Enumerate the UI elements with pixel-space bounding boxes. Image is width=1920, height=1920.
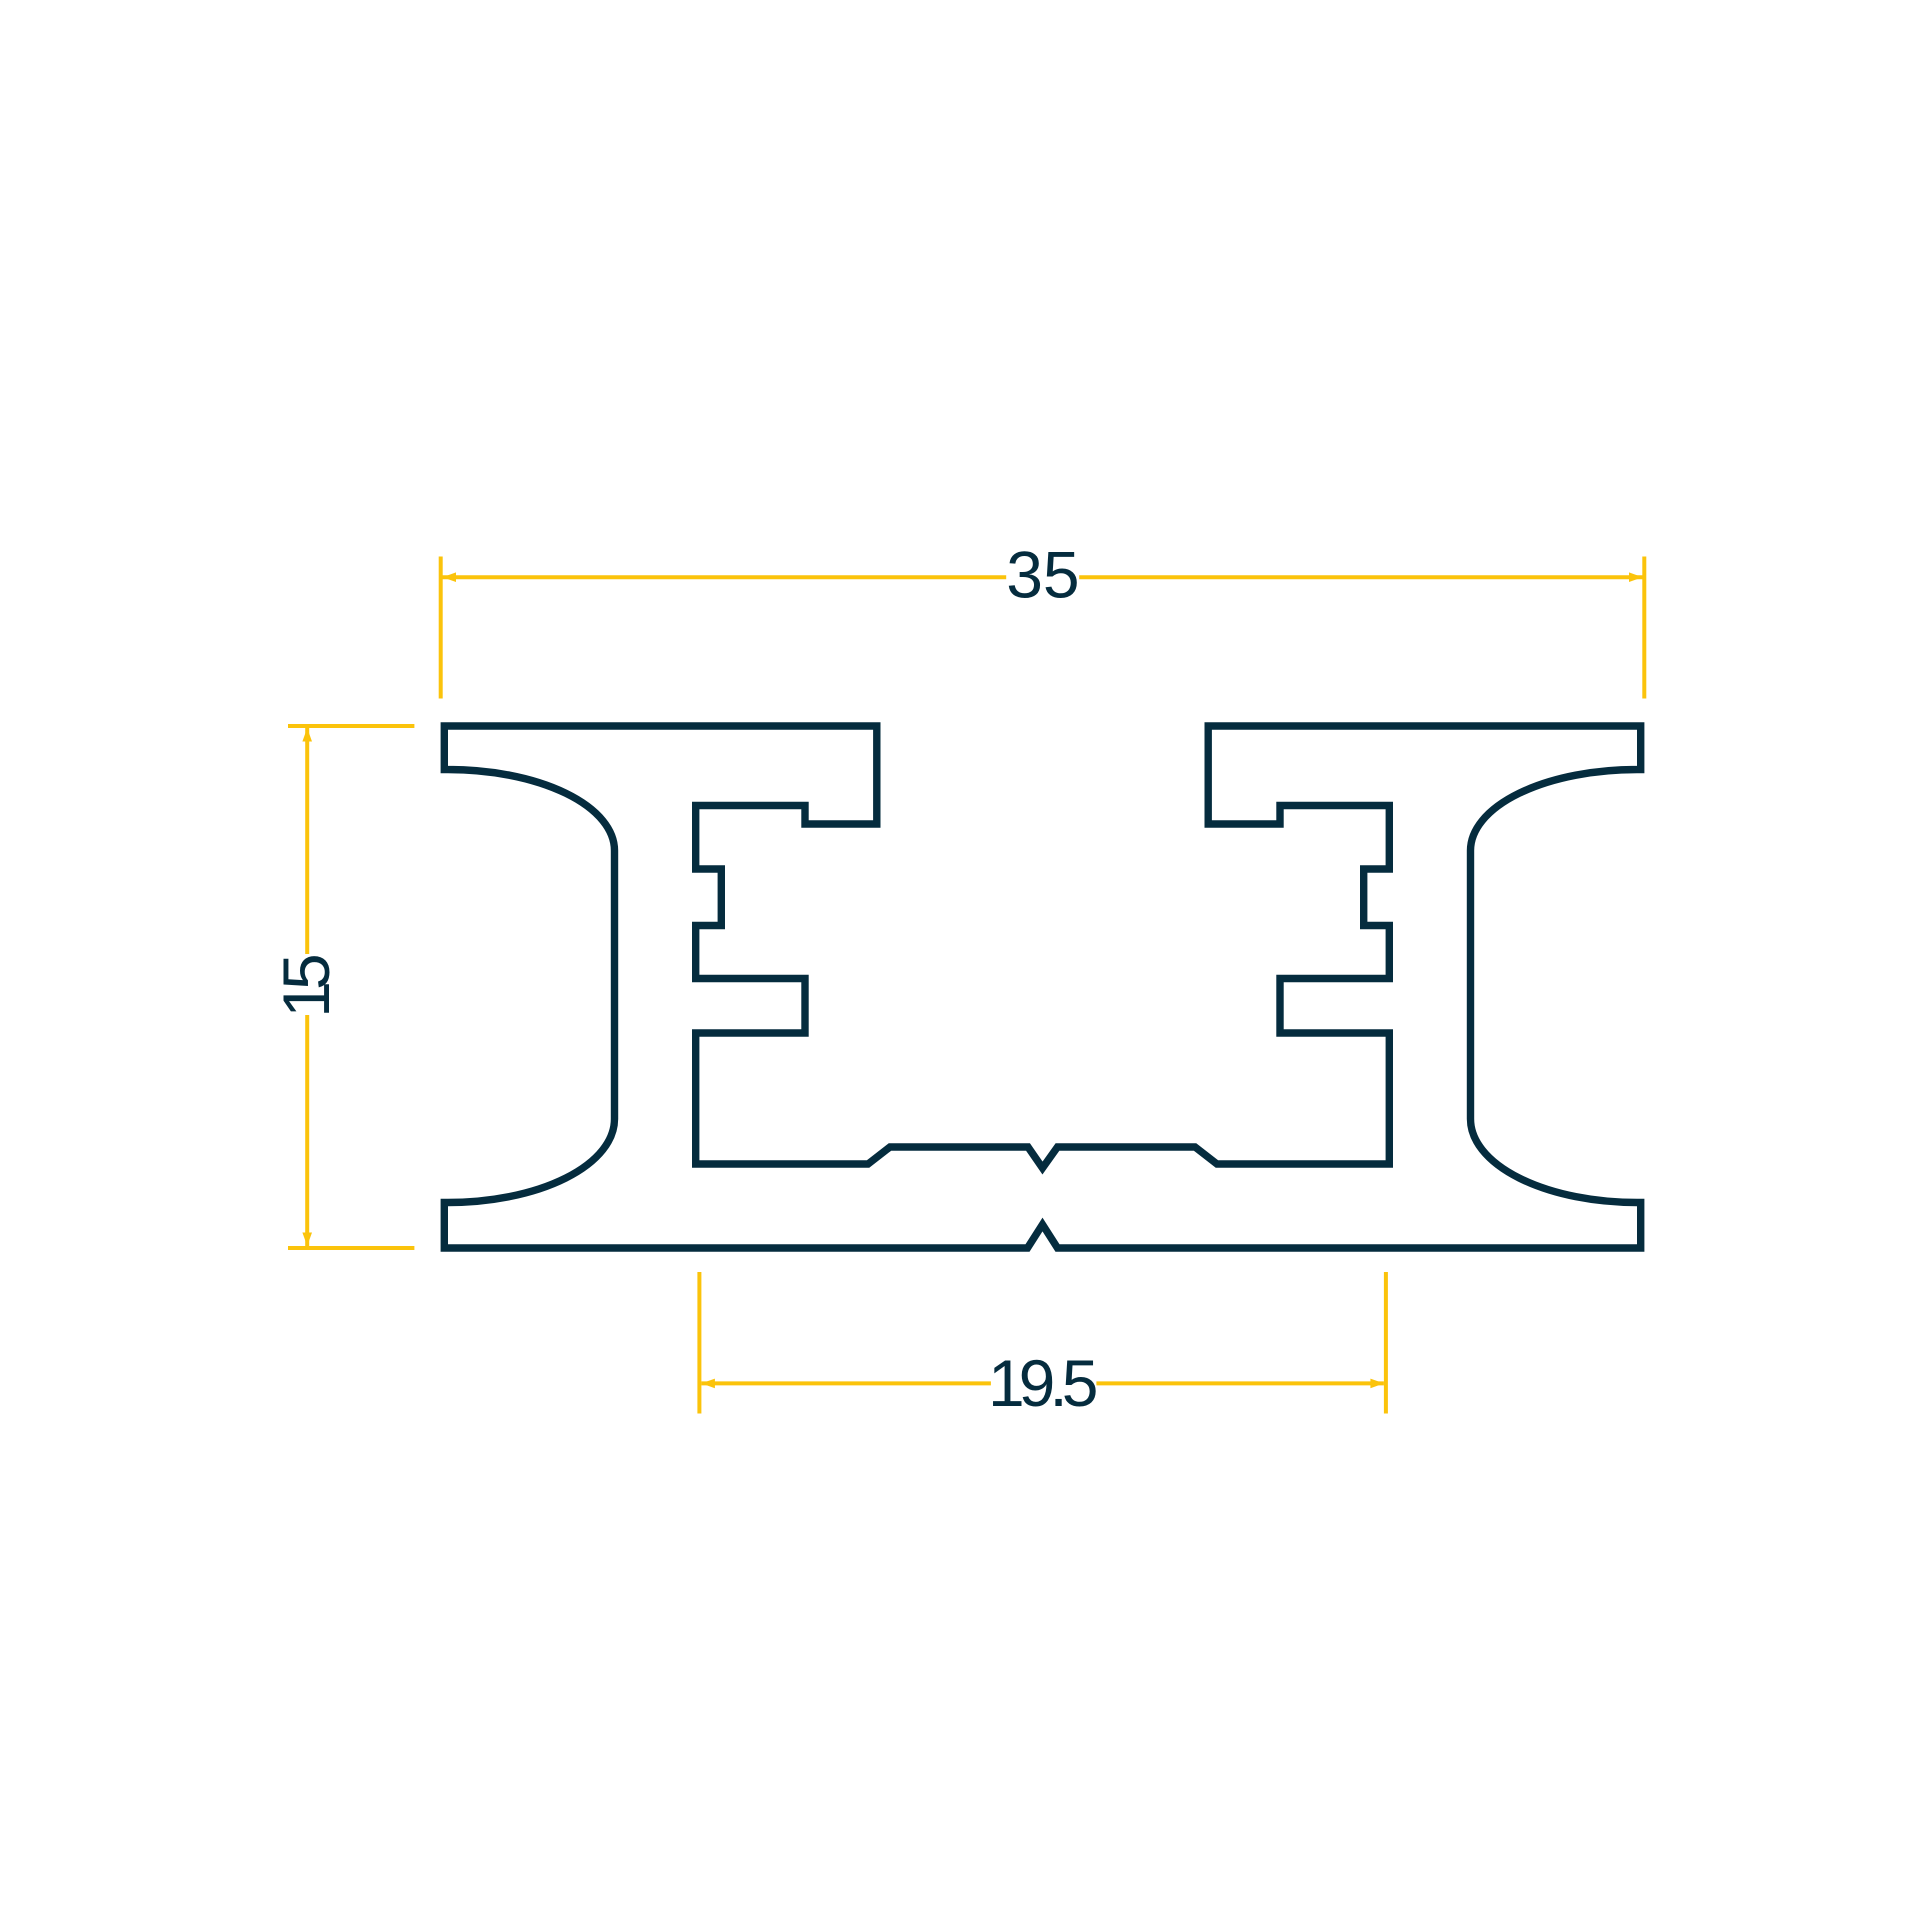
svg-text:19.5: 19.5	[988, 1346, 1096, 1420]
svg-text:35: 35	[1006, 538, 1079, 612]
svg-text:15: 15	[269, 956, 343, 1018]
